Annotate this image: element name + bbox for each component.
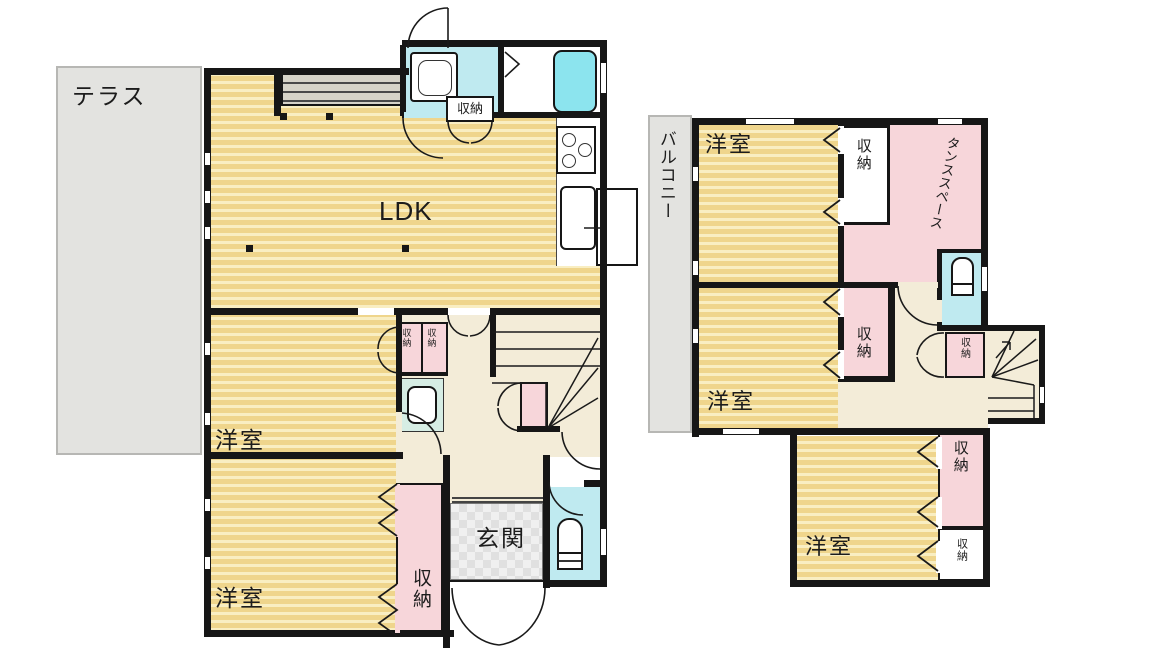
hall2f-floor-b [838,378,890,430]
understair-closet [520,382,548,430]
ldk-label: LDK [379,198,433,225]
stove-icon [556,126,596,174]
bedroom3-label: 洋室 [805,535,853,558]
storage-small-a-label: 収納 [401,328,410,348]
storage-bedroom3-upper-label: 収納 [952,440,968,474]
entrance-hall-floor [443,455,543,503]
closet-strip-top-sliver [396,455,443,483]
floor-plan: 収納 [0,0,1158,665]
entry-storage-closet [396,483,443,633]
kitchen-sink-icon [560,186,596,250]
balcony-label: バルコニー [657,130,675,220]
washbasin-icon [407,386,437,424]
bedroom3-floor [796,436,938,581]
terrace-area [56,66,202,455]
ldk-counter [281,72,403,106]
storage-bedroom3-lower-label: 収納 [955,538,967,562]
vanity-icon [410,52,458,102]
bedroom-mid-label: 洋室 [215,428,265,452]
storage-washroom-label: 収納 [457,102,483,116]
storage-small-b-label: 収納 [426,328,435,348]
storage-entry-label: 収納 [410,568,430,610]
bathtub-icon [553,50,597,113]
washbasin-unit [400,378,444,432]
terrace-label: テラス [72,84,147,108]
bedroom1-label: 洋室 [705,133,753,156]
storage-hall-label: 収納 [958,337,969,359]
storage-washroom-box: 収納 [446,96,494,122]
genkan-label: 玄関 [476,526,526,550]
bedroom2-label: 洋室 [707,390,755,413]
bedroom-bottom-label: 洋室 [215,586,265,610]
storage-bedroom2-label: 収納 [855,326,871,360]
stairs2f-floor [988,325,1039,424]
storage-bedroom1-label: 収納 [855,138,871,172]
